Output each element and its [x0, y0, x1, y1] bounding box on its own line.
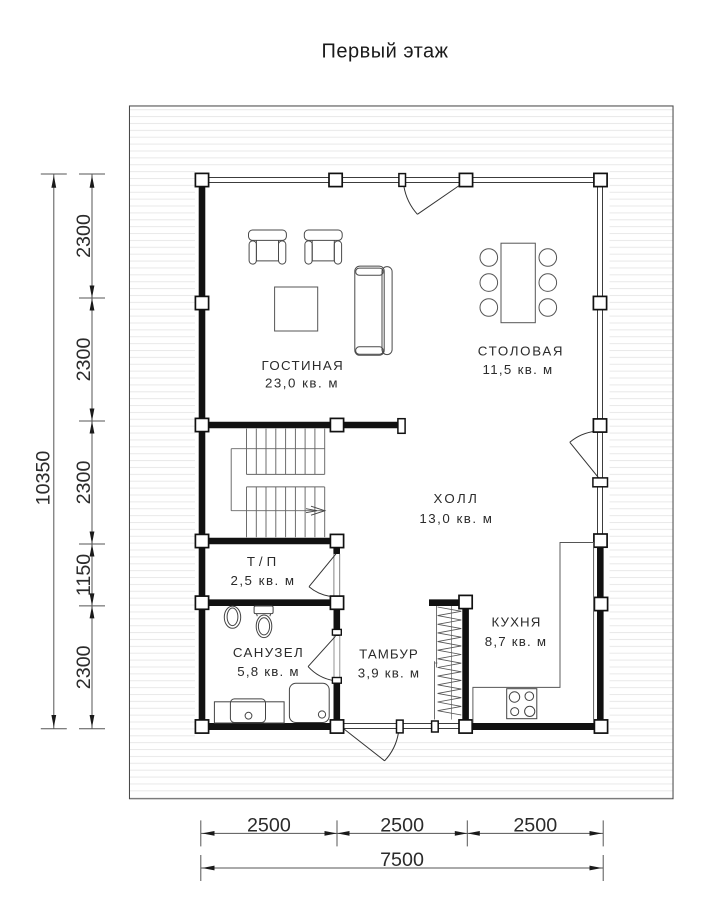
svg-text:Т/П: Т/П	[247, 554, 280, 569]
svg-text:ХОЛЛ: ХОЛЛ	[434, 491, 480, 506]
svg-text:5,8 кв. м: 5,8 кв. м	[237, 664, 299, 679]
svg-text:САНУЗЕЛ: САНУЗЕЛ	[233, 645, 304, 660]
svg-text:КУХНЯ: КУХНЯ	[492, 615, 542, 630]
svg-text:23,0 кв. м: 23,0 кв. м	[265, 376, 339, 391]
svg-text:2,5 кв. м: 2,5 кв. м	[230, 573, 295, 588]
svg-text:СТОЛОВАЯ: СТОЛОВАЯ	[478, 343, 564, 358]
svg-text:2300: 2300	[73, 214, 95, 258]
svg-text:7500: 7500	[380, 849, 424, 871]
svg-text:2300: 2300	[73, 645, 95, 689]
svg-text:ГОСТИНАЯ: ГОСТИНАЯ	[262, 358, 345, 373]
svg-text:ТАМБУР: ТАМБУР	[359, 647, 419, 662]
svg-text:2300: 2300	[73, 461, 95, 505]
svg-text:13,0 кв. м: 13,0 кв. м	[419, 511, 493, 526]
svg-text:2500: 2500	[513, 814, 557, 836]
svg-text:2500: 2500	[247, 814, 291, 836]
svg-text:10350: 10350	[32, 451, 54, 506]
svg-text:Первый этаж: Первый этаж	[321, 40, 448, 62]
svg-text:2500: 2500	[380, 814, 424, 836]
svg-text:3,9 кв. м: 3,9 кв. м	[358, 666, 420, 681]
svg-text:8,7 кв. м: 8,7 кв. м	[485, 634, 547, 649]
svg-text:1150: 1150	[73, 554, 95, 596]
svg-text:2300: 2300	[73, 338, 95, 382]
svg-text:11,5 кв. м: 11,5 кв. м	[483, 362, 554, 377]
